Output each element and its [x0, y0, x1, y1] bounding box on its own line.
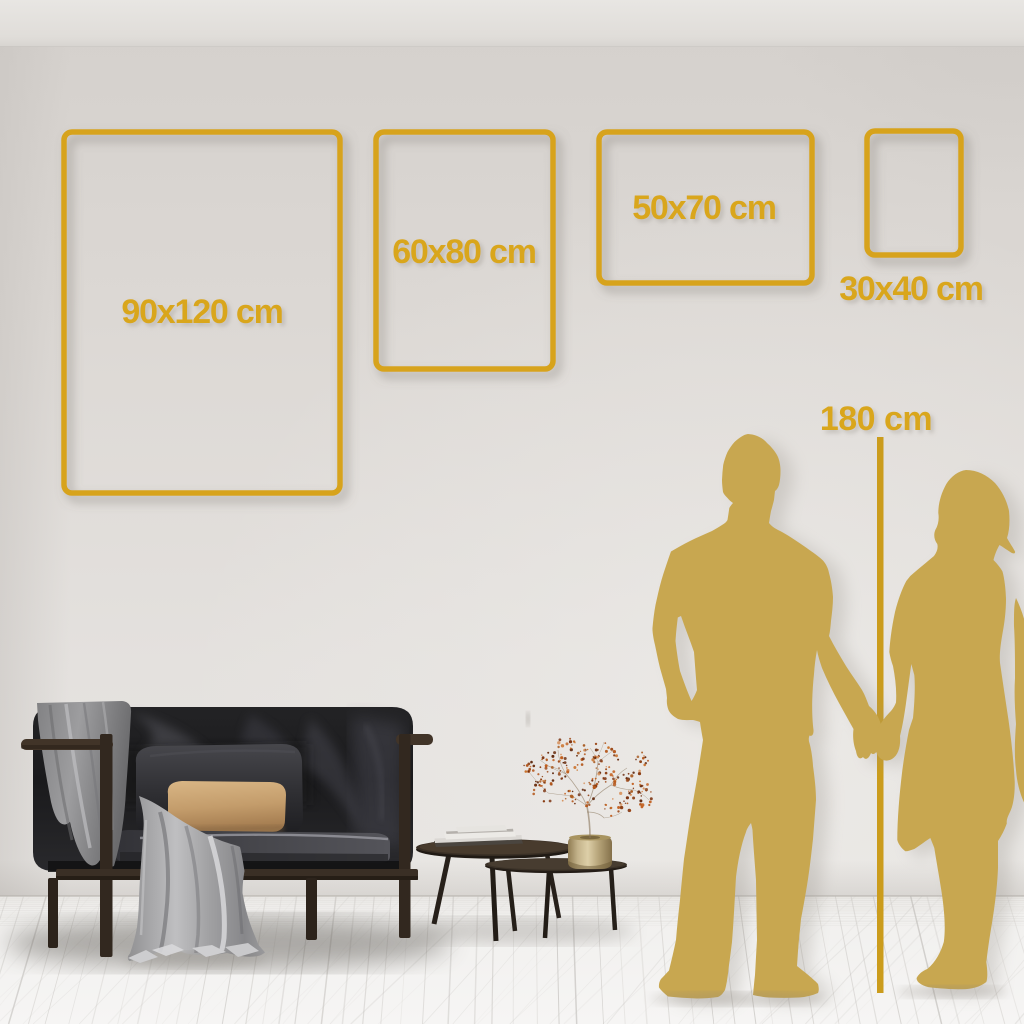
svg-text:50x70 cm: 50x70 cm — [632, 189, 776, 227]
svg-text:60x80 cm: 60x80 cm — [392, 233, 536, 271]
svg-text:90x120 cm: 90x120 cm — [121, 293, 282, 331]
svg-text:180 cm: 180 cm — [820, 400, 932, 438]
svg-text:30x40 cm: 30x40 cm — [839, 270, 983, 308]
